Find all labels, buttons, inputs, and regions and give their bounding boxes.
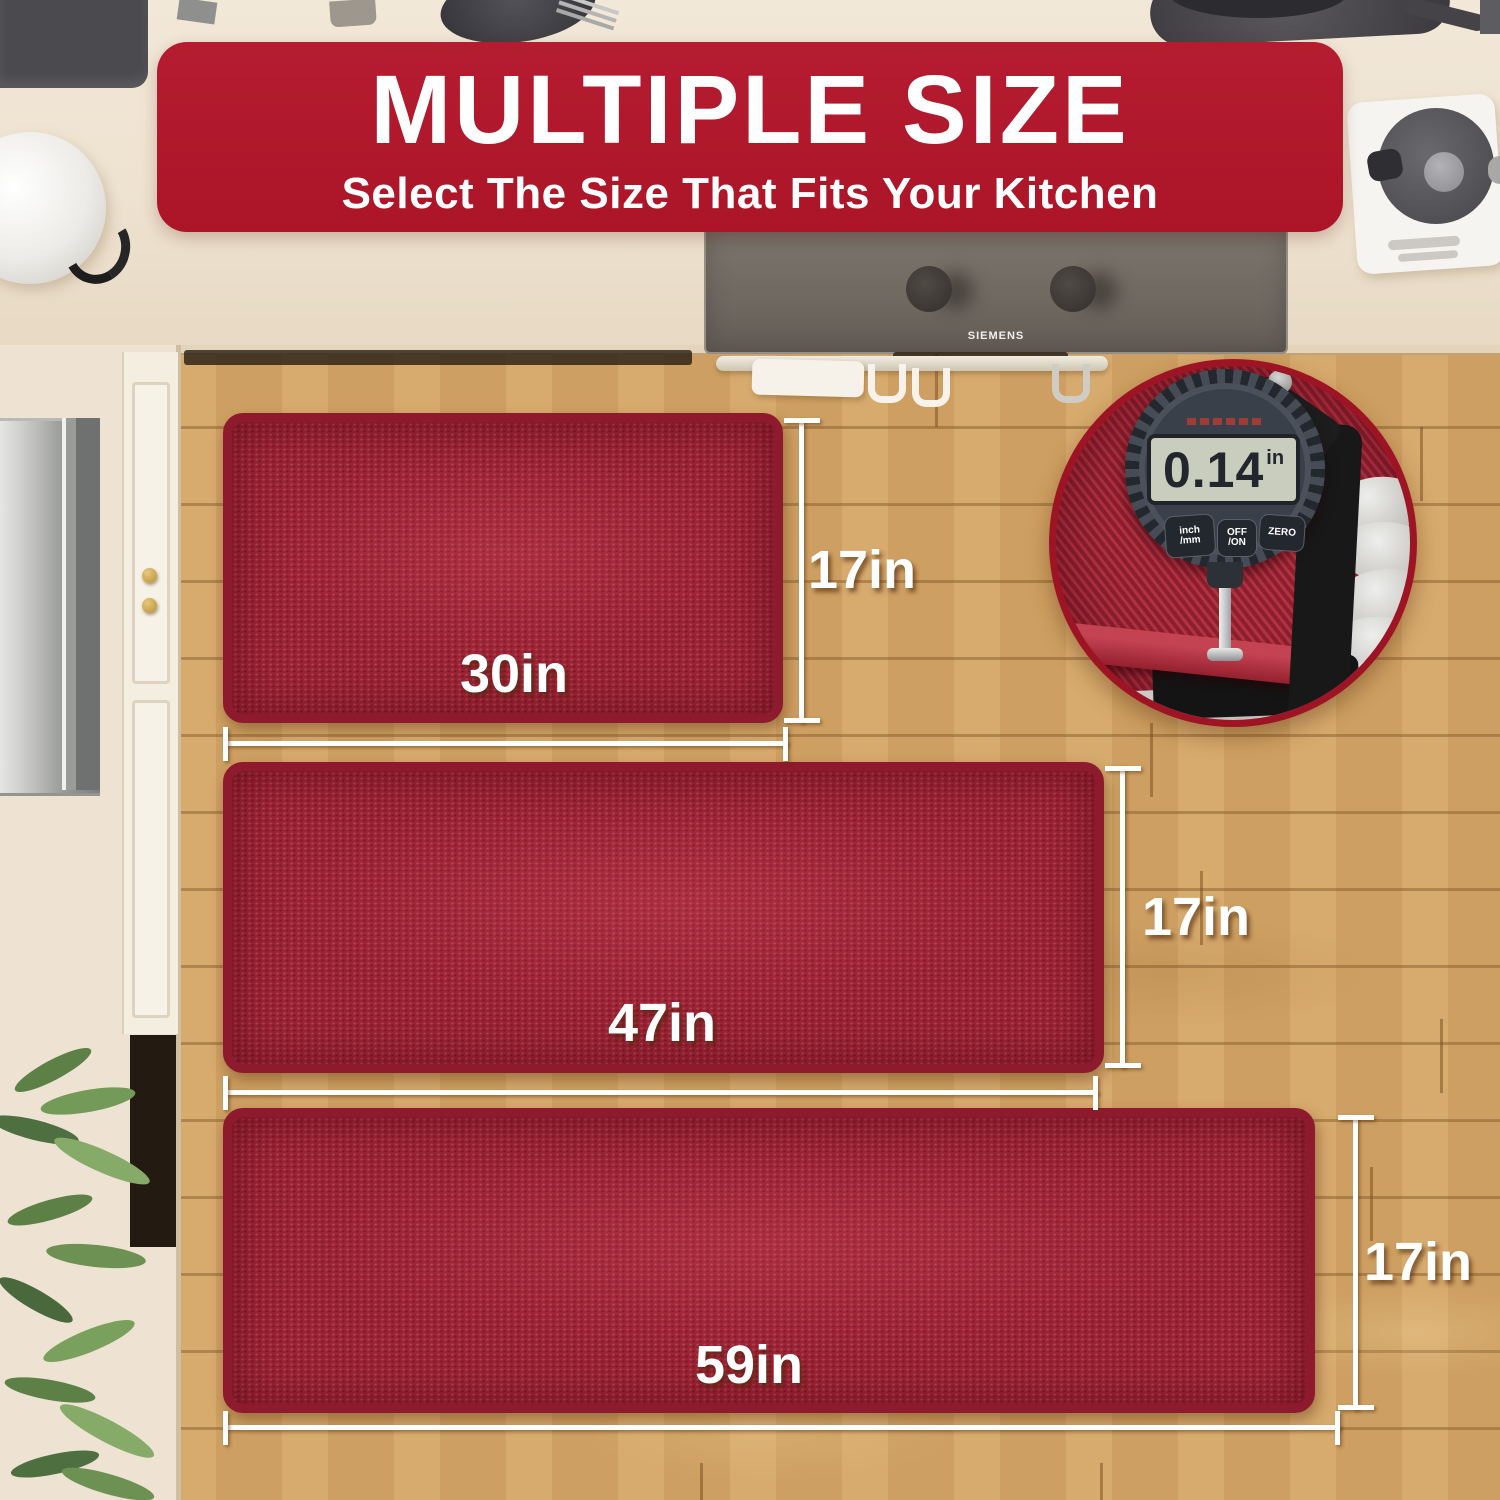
plank-joint	[1440, 1019, 1443, 1093]
gauge-button-line: /ON	[1228, 538, 1246, 549]
dim-cap	[223, 1411, 228, 1445]
s-hook	[868, 364, 906, 403]
gauge-reading: 0.14	[1163, 445, 1264, 495]
utensil	[329, 0, 377, 28]
mat-small-width-label: 30in	[460, 647, 568, 701]
dim-line-height-small	[799, 418, 804, 723]
counter-shadow-slot	[184, 350, 692, 365]
dim-line-width-small	[223, 741, 788, 746]
gauge-button-off-on: OFF /ON	[1217, 519, 1257, 557]
plank-joint	[1100, 1463, 1103, 1500]
plank-joint	[1420, 427, 1423, 501]
headline-banner: MULTIPLE SIZE Select The Size That Fits …	[157, 42, 1343, 232]
white-towel	[752, 359, 865, 398]
gauge-lcd: 0.14 in	[1147, 434, 1300, 505]
dim-cap	[783, 727, 788, 761]
dim-label-height-medium: 17in	[1142, 890, 1250, 944]
product-size-infographic: SIEMENS 30in 47in 59in 17in	[0, 0, 1500, 1500]
gauge-button-zero: ZERO	[1258, 513, 1306, 552]
dim-cap	[1105, 766, 1141, 771]
stainless-appliance-handle	[62, 418, 100, 790]
dim-cap	[223, 727, 228, 761]
potted-plant	[0, 1030, 220, 1500]
counter-object	[1480, 0, 1500, 34]
s-hook	[912, 368, 950, 407]
gauge-button-line: ZERO	[1268, 527, 1296, 539]
cooktop-knob	[1050, 266, 1096, 312]
appliance-knob	[1424, 152, 1464, 192]
dim-line-width-medium	[223, 1090, 1098, 1095]
gauge-stem	[1207, 562, 1243, 588]
mat-medium: 47in	[223, 762, 1104, 1073]
dim-cap	[1338, 1405, 1374, 1410]
dim-cap	[1335, 1411, 1340, 1445]
plank-joint	[1150, 723, 1153, 797]
thickness-gauge-inset: 0.14 in inch /mm OFF /ON ZERO	[1049, 359, 1417, 727]
mat-medium-width-label: 47in	[608, 996, 716, 1050]
gauge-button-line: /mm	[1180, 535, 1201, 547]
cabinet-knob	[142, 568, 157, 583]
plank-joint	[700, 1463, 703, 1500]
dim-cap	[784, 718, 820, 723]
dim-line-width-large	[223, 1425, 1340, 1430]
dim-line-height-large	[1353, 1115, 1358, 1410]
dim-cap	[1338, 1115, 1374, 1120]
black-appliance	[0, 0, 148, 88]
mat-large-width-label: 59in	[695, 1338, 803, 1392]
mat-small: 30in	[223, 413, 783, 723]
dim-cap	[784, 418, 820, 423]
cabinet-panel	[132, 382, 170, 684]
mat-large: 59in	[223, 1108, 1315, 1413]
brand-label: SIEMENS	[956, 330, 1036, 342]
dim-label-height-large: 17in	[1364, 1235, 1472, 1289]
dim-label-height-small: 17in	[808, 543, 916, 597]
gauge-button-inch-mm: inch /mm	[1164, 513, 1217, 558]
dim-cap	[1093, 1076, 1098, 1110]
dim-cap	[223, 1076, 228, 1110]
plank-joint	[1370, 1167, 1373, 1241]
cooktop-knob	[906, 266, 952, 312]
dim-line-height-medium	[1120, 766, 1125, 1068]
cabinet-panel	[132, 700, 170, 1018]
cabinet-knob	[142, 598, 157, 613]
gauge-spindle-foot	[1207, 648, 1243, 661]
gauge-spindle	[1219, 588, 1231, 648]
gauge-logo-marks	[1187, 418, 1263, 425]
banner-title: MULTIPLE SIZE	[370, 61, 1129, 158]
dim-cap	[1105, 1063, 1141, 1068]
gauge-reading-unit: in	[1266, 448, 1284, 468]
banner-subtitle: Select The Size That Fits Your Kitchen	[342, 172, 1159, 216]
siemens-cooktop: SIEMENS	[706, 228, 1286, 352]
